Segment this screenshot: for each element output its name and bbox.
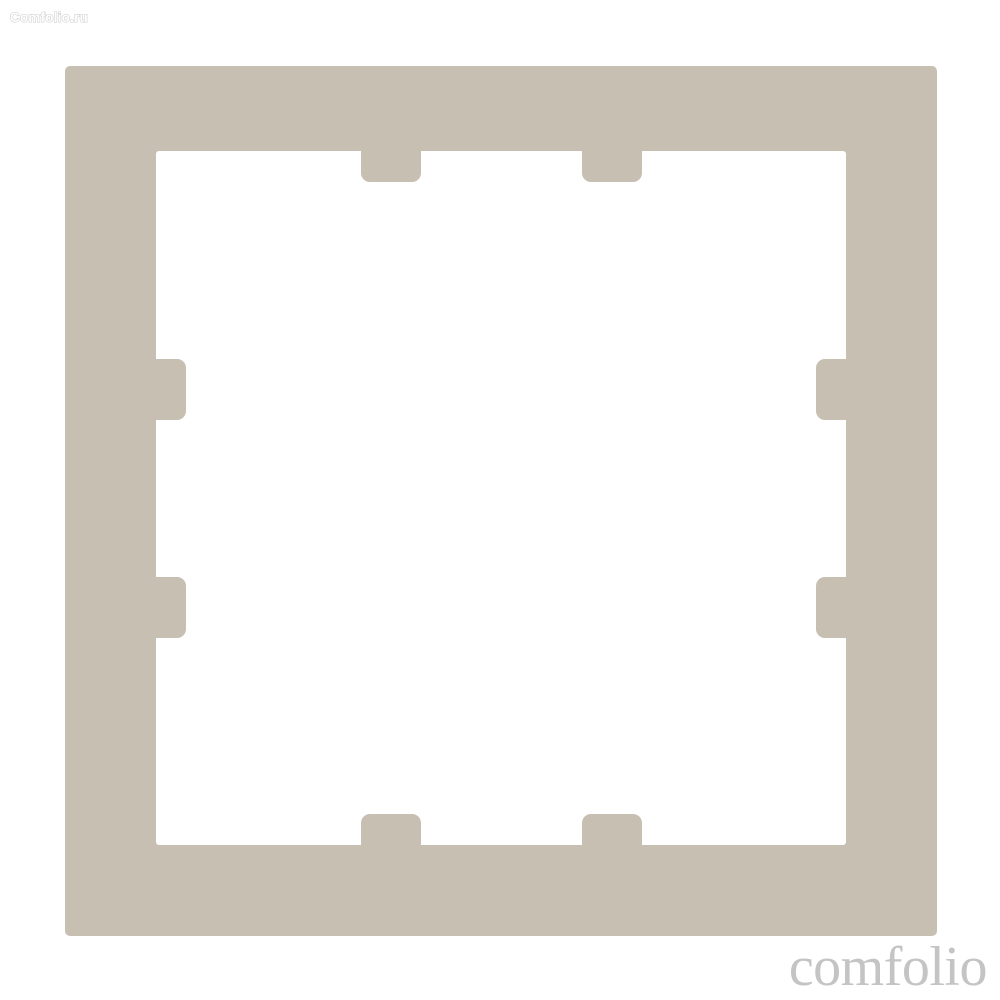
mount-tab-right-top — [816, 359, 846, 420]
switch-frame-plate — [65, 66, 937, 936]
mount-tab-top-left — [361, 151, 421, 182]
frame-opening — [156, 151, 846, 845]
mount-tab-left-bottom — [156, 577, 186, 638]
watermark-bottom-right: comfolio — [789, 939, 987, 995]
watermark-top-left-text: Comfolio.ru — [10, 10, 88, 25]
mount-tab-bottom-left — [361, 814, 421, 845]
watermark-top-left: Comfolio.ru — [8, 4, 148, 32]
mount-tab-right-bottom — [816, 577, 846, 638]
product-photo: Comfolio.ru comfolio — [0, 0, 1000, 1000]
mount-tab-left-top — [156, 359, 186, 420]
mount-tab-bottom-right — [582, 814, 642, 845]
mount-tab-top-right — [582, 151, 642, 182]
